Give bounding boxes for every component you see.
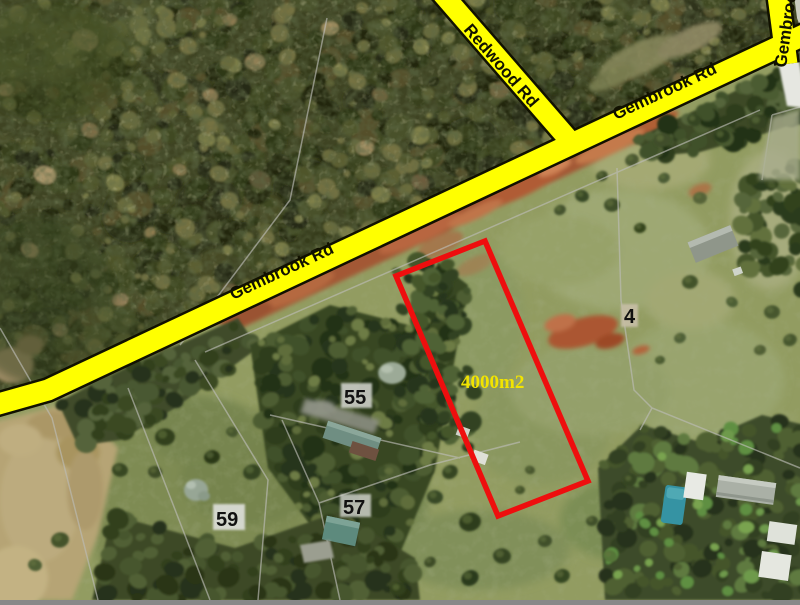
- svg-text:55: 55: [344, 387, 366, 409]
- svg-text:4: 4: [624, 306, 636, 328]
- svg-text:4000m2: 4000m2: [461, 372, 524, 393]
- svg-text:57: 57: [343, 497, 365, 519]
- svg-text:59: 59: [216, 509, 238, 531]
